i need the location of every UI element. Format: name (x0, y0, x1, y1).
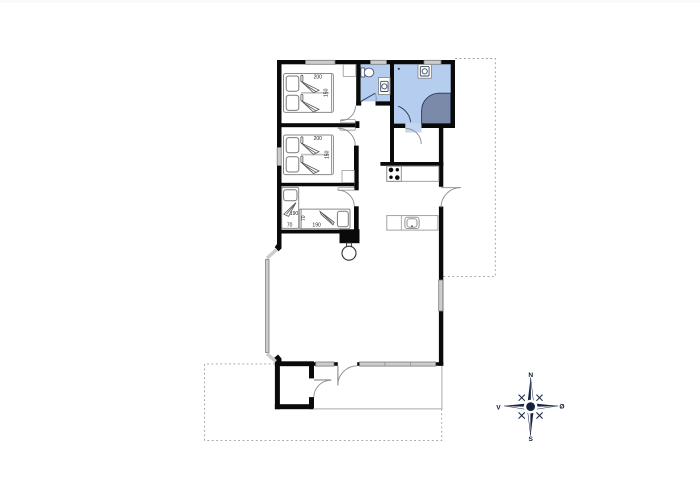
svg-text:S: S (528, 436, 533, 443)
svg-text:200: 200 (314, 136, 323, 142)
svg-text:150: 150 (323, 88, 329, 97)
svg-text:70: 70 (287, 223, 293, 229)
svg-text:200: 200 (314, 75, 323, 81)
svg-text:70: 70 (301, 215, 307, 221)
svg-text:190: 190 (312, 223, 321, 229)
svg-text:N: N (528, 372, 533, 379)
svg-text:Ø: Ø (559, 404, 564, 411)
svg-text:190: 190 (290, 211, 299, 217)
svg-text:V: V (496, 404, 501, 411)
svg-text:150: 150 (325, 150, 331, 159)
